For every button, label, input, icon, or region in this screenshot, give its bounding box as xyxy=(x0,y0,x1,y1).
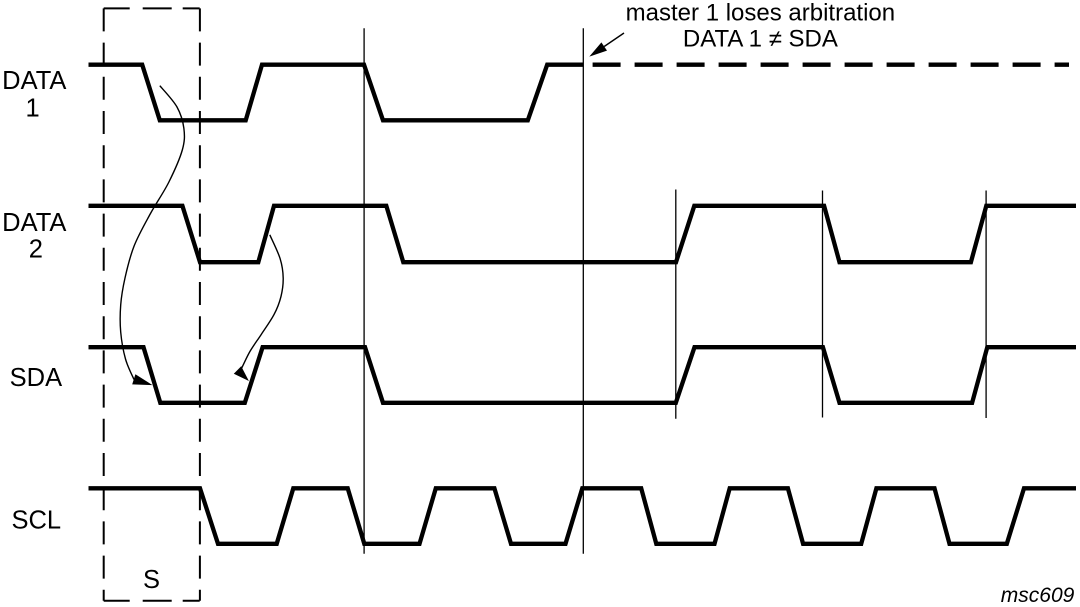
svg-text:SCL: SCL xyxy=(11,507,61,535)
svg-text:S: S xyxy=(143,566,160,594)
svg-text:master 1 loses arbitration: master 1 loses arbitration xyxy=(626,0,895,27)
svg-text:DATA 1 ≠ SDA: DATA 1 ≠ SDA xyxy=(683,25,838,52)
svg-text:msc609: msc609 xyxy=(1001,584,1075,607)
svg-text:SDA: SDA xyxy=(10,364,62,392)
svg-text:DATA: DATA xyxy=(2,67,66,95)
svg-text:DATA: DATA xyxy=(2,209,66,237)
svg-text:1: 1 xyxy=(26,95,40,123)
svg-text:2: 2 xyxy=(29,236,43,264)
